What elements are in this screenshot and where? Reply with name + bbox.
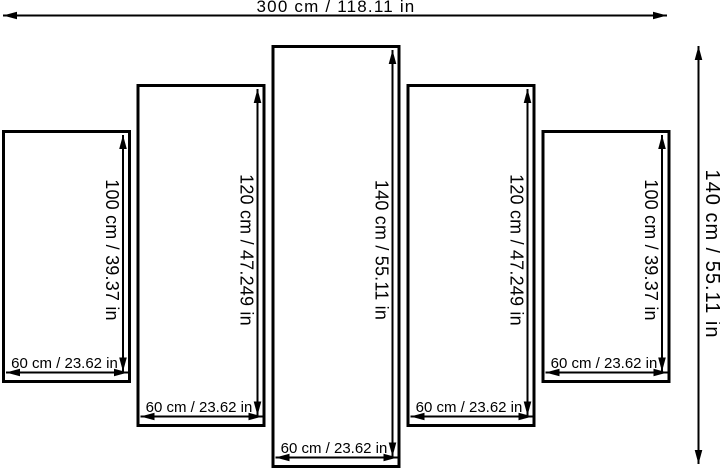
panel-1-height-label: 100 cm / 39.37 in <box>102 179 122 321</box>
five-panel-dimension-diagram: 300 cm / 118.11 in 140 cm / 55.11 in 100… <box>0 0 720 474</box>
panel-3-height-label: 140 cm / 55.11 in <box>372 180 392 320</box>
diagram-canvas: 300 cm / 118.11 in 140 cm / 55.11 in 100… <box>0 0 720 474</box>
panel-3-width-label: 60 cm / 23.62 in <box>281 440 388 457</box>
panel-4-width-label: 60 cm / 23.62 in <box>416 399 523 416</box>
total-height-label: 140 cm / 55.11 in <box>701 170 720 339</box>
panel-4-height-label: 120 cm / 47.249 in <box>507 174 527 326</box>
panel-5-height-label: 100 cm / 39.37 in <box>641 179 661 321</box>
panel-5-width-label: 60 cm / 23.62 in <box>551 355 658 372</box>
panel-2-width-label: 60 cm / 23.62 in <box>146 399 253 416</box>
panel-1-width-label: 60 cm / 23.62 in <box>11 355 118 372</box>
total-width-label: 300 cm / 118.11 in <box>257 0 416 16</box>
panel-2-height-label: 120 cm / 47.249 in <box>237 174 257 326</box>
